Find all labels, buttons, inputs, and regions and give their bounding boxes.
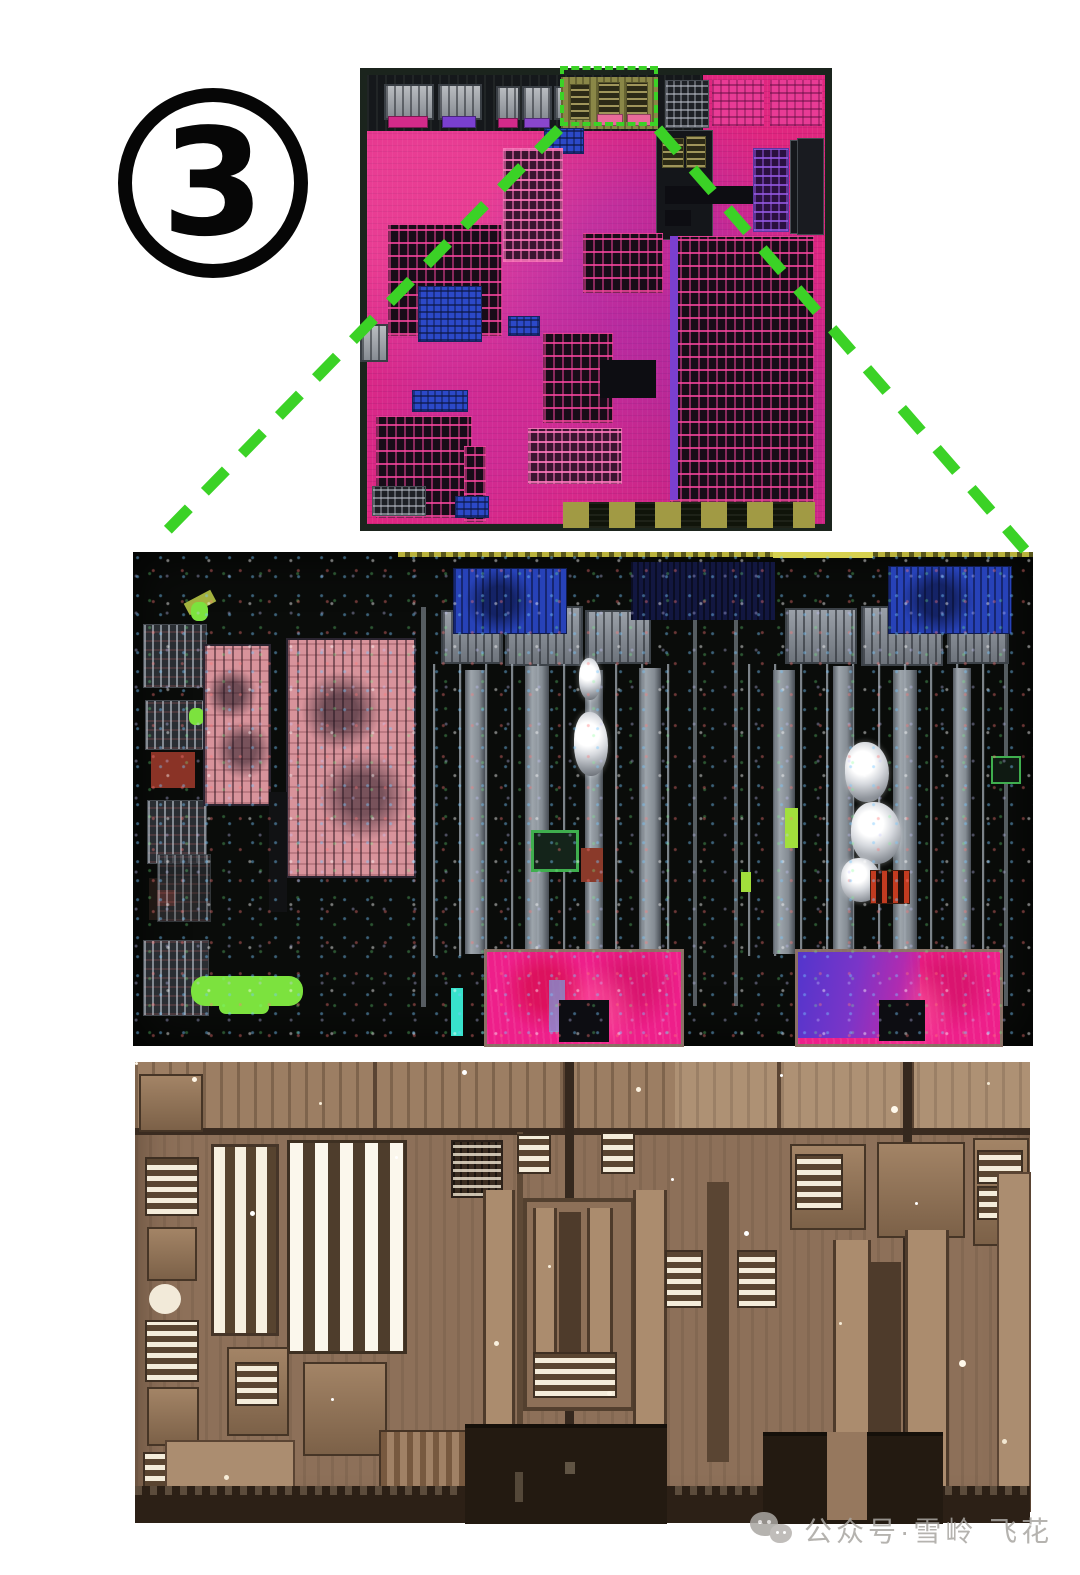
bus-column xyxy=(465,670,485,954)
blue-macro xyxy=(412,390,468,412)
sram-array xyxy=(503,148,563,262)
white-bar-macro xyxy=(211,1144,279,1336)
dark-navy-macro xyxy=(631,562,775,620)
metal-blob xyxy=(851,802,901,864)
green-framed-block xyxy=(531,830,579,872)
module-block xyxy=(686,136,706,168)
ladder-module xyxy=(737,1250,777,1308)
cell-boundary xyxy=(421,607,426,1007)
ladder-module xyxy=(665,1250,703,1308)
pink-macro-block xyxy=(286,638,416,878)
band-divider xyxy=(777,1062,781,1128)
memory-grid xyxy=(665,80,709,128)
cell-boundary xyxy=(734,610,738,1006)
light-gap xyxy=(827,1432,867,1520)
wechat-icon xyxy=(750,1512,794,1548)
ladder-module xyxy=(795,1154,843,1210)
panel-block xyxy=(997,1172,1031,1512)
ladder-module xyxy=(601,1132,635,1174)
module-block xyxy=(303,1362,387,1456)
band-divider xyxy=(373,1062,377,1128)
white-bar-macro xyxy=(287,1140,407,1354)
red-bar-array xyxy=(870,870,910,904)
dust-sparkles xyxy=(135,1062,138,1065)
metal-blob xyxy=(579,658,601,700)
blue-macro xyxy=(453,568,567,634)
teal-accent xyxy=(451,988,463,1036)
blue-macro xyxy=(508,316,540,336)
module-block xyxy=(438,84,482,120)
watermark-text: 公众号·雪岭 飞花 xyxy=(804,1510,1053,1550)
annotation-number: 3 xyxy=(162,109,265,257)
module-block xyxy=(877,1142,965,1238)
chip-block xyxy=(498,118,518,128)
bright-blob xyxy=(149,1284,181,1314)
bus-column xyxy=(639,668,661,954)
annotation-circle: 3 xyxy=(118,88,308,278)
metal-blob xyxy=(845,742,889,802)
green-debris xyxy=(191,602,208,621)
memory-grid xyxy=(372,486,426,516)
zoom-highlight-rect xyxy=(560,66,658,126)
module-block xyxy=(157,854,211,922)
faint-feature xyxy=(565,1462,575,1474)
die-overview-photo xyxy=(360,68,832,531)
sram-array xyxy=(583,233,663,293)
module-block xyxy=(662,138,684,168)
bus-column xyxy=(483,1190,515,1445)
module-block xyxy=(522,86,552,120)
bus-column xyxy=(833,666,853,954)
module-block xyxy=(785,608,857,664)
bus-column xyxy=(893,670,917,954)
green-debris xyxy=(219,1000,269,1014)
band-rule xyxy=(135,1128,1030,1135)
cell-boundary xyxy=(693,610,697,1006)
red-macro xyxy=(151,752,195,788)
green-accent xyxy=(785,808,798,848)
article-figure-page: 3 xyxy=(0,0,1080,1575)
blue-macro xyxy=(888,566,1012,634)
ladder-module xyxy=(517,1134,551,1174)
module-block xyxy=(147,1227,197,1281)
ladder-module xyxy=(145,1320,199,1382)
blue-macro xyxy=(455,496,489,518)
edge-module xyxy=(360,324,388,362)
green-accent xyxy=(741,872,751,892)
bus-column xyxy=(525,666,549,954)
ladder-module xyxy=(145,1157,199,1216)
memory-grid xyxy=(753,148,789,232)
io-pad-row xyxy=(563,502,815,528)
sram-array xyxy=(528,428,622,484)
macro-notch xyxy=(559,1000,609,1042)
chip-block xyxy=(665,210,691,226)
ladder-module xyxy=(533,1352,617,1398)
ladder-module xyxy=(235,1362,279,1406)
chip-block xyxy=(388,116,428,128)
red-chip xyxy=(581,848,603,882)
chip-row xyxy=(665,186,755,204)
edge-seal-line xyxy=(398,552,1033,557)
macro-notch xyxy=(879,1000,925,1041)
memory-grid xyxy=(712,80,764,126)
sram-array-large xyxy=(670,236,814,502)
bus-column xyxy=(953,668,971,954)
chip-block xyxy=(524,118,550,128)
dark-macro-block xyxy=(465,1424,667,1524)
macro-edge xyxy=(670,236,678,500)
dark-module-area xyxy=(797,138,824,235)
module-block xyxy=(147,1387,199,1446)
dark-column xyxy=(707,1182,729,1462)
dark-gap xyxy=(269,792,287,912)
module-block xyxy=(143,624,207,688)
module-block xyxy=(384,84,434,120)
memory-grid xyxy=(770,80,822,126)
green-debris xyxy=(189,708,204,725)
edge-seal-bright xyxy=(773,552,873,558)
metal-blob xyxy=(574,712,608,776)
black-macro xyxy=(600,360,656,398)
module-block xyxy=(139,1074,203,1132)
top-band-light xyxy=(675,1062,1030,1128)
module-block xyxy=(496,86,520,120)
bus-column xyxy=(633,1190,667,1448)
die-detail-photo-highmag xyxy=(135,1062,1030,1523)
watermark: 公众号·雪岭 飞花 xyxy=(750,1510,1053,1550)
chip-block xyxy=(442,116,476,128)
green-framed-block xyxy=(991,756,1021,784)
die-detail-photo-closeup xyxy=(133,552,1033,1046)
faint-feature xyxy=(515,1472,523,1502)
blue-macro xyxy=(418,286,482,342)
pink-macro-block xyxy=(203,644,271,806)
